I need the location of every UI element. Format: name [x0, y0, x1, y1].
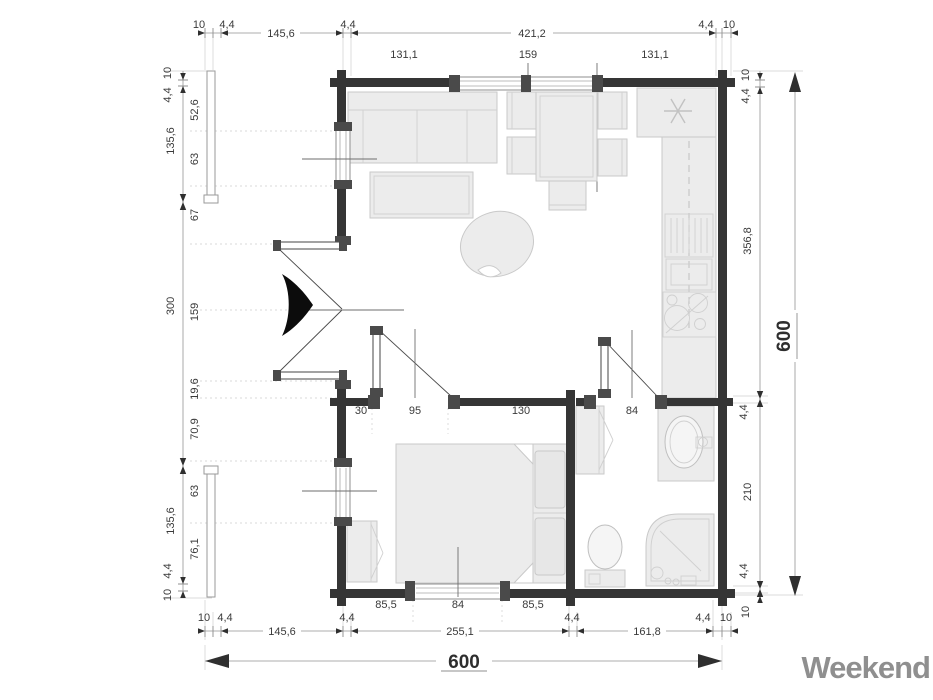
cabinet-body: [576, 406, 604, 474]
dining-chair: [507, 92, 536, 129]
total-dim-label: 600: [774, 320, 795, 352]
door-leaf-cap: [370, 388, 383, 397]
floorplan-page: 10 4,4 145,6 4,4 421,2 4,4 10 131,1 159 …: [0, 0, 933, 700]
door-leaf: [277, 242, 344, 249]
dimensions-right: 10 4,4 356,8 4,4 210 4,4 10 600: [733, 69, 803, 618]
window-cap: [334, 180, 352, 189]
brand-logo: Weekend: [801, 650, 930, 685]
exterior-wall-bottom: [330, 589, 735, 598]
door-leaf-cap: [370, 326, 383, 335]
door-leaf: [373, 329, 380, 395]
porch: [204, 71, 218, 597]
toilet-bowl: [588, 525, 622, 569]
dim-label: 4,4: [698, 19, 713, 31]
dim-label: 130: [512, 405, 530, 417]
window-frame: [336, 461, 350, 524]
dimensions-bottom: 85,5 84 85,5 10 4,4 145,6 4,4 255,1 4,4 …: [198, 599, 738, 673]
door-post: [368, 395, 380, 409]
dim-label: 210: [742, 483, 754, 501]
dim-label: 131,1: [641, 49, 669, 61]
window-cap: [449, 75, 460, 92]
dim-label: 30: [355, 405, 367, 417]
porch-rail-bottom: [207, 466, 215, 597]
dim-label: 4,4: [339, 612, 354, 624]
dining-chair: [507, 137, 536, 174]
dim-label: 76,1: [189, 538, 201, 559]
pillow: [535, 451, 565, 508]
coffee-table-top: [370, 172, 473, 218]
dim-label: 84: [626, 405, 638, 417]
dim-label: 4,4: [738, 404, 750, 419]
total-dim-label: 600: [448, 652, 480, 673]
door-swing-line: [380, 331, 452, 397]
dim-label: 85,5: [375, 599, 396, 611]
porch-rail-top-foot: [204, 195, 218, 203]
door-post: [584, 395, 596, 409]
dining-area: [507, 92, 627, 210]
dim-label: 52,6: [189, 99, 201, 120]
dim-label: 161,8: [633, 626, 661, 638]
door-leaf-cap: [273, 240, 281, 251]
dim-label: 4,4: [217, 612, 232, 624]
door-post: [335, 380, 351, 389]
bathroom-cabinet: [576, 406, 613, 474]
bed: [396, 444, 567, 583]
bedroom-door: [368, 326, 460, 409]
door-leaf-cap: [598, 389, 611, 398]
dining-table: [536, 92, 597, 181]
door-post: [655, 395, 667, 409]
dim-label: 4,4: [740, 88, 752, 103]
dim-label: 10: [198, 612, 210, 624]
window-cap: [521, 75, 531, 92]
interior-wall-divider: [566, 390, 575, 606]
dim-label: 300: [165, 297, 177, 315]
dim-label: 145,6: [268, 626, 296, 638]
dim-label: 95: [409, 405, 421, 417]
dim-label: 4,4: [564, 612, 579, 624]
dim-label: 421,2: [518, 28, 546, 40]
floorplan-drawing: 10 4,4 145,6 4,4 421,2 4,4 10 131,1 159 …: [0, 0, 933, 700]
dim-label: 19,6: [189, 378, 201, 399]
washbasin: [665, 416, 703, 468]
entrance-arrow: [282, 274, 313, 336]
door-post: [448, 395, 460, 409]
kitchen: [637, 88, 716, 398]
dim-label: 356,8: [742, 227, 754, 255]
dim-label: 10: [162, 67, 174, 79]
dim-label: 4,4: [738, 563, 750, 578]
door-leaf-cap: [273, 370, 281, 381]
dim-label: 63: [189, 153, 201, 165]
interior-wall-mid-b: [452, 398, 567, 406]
window-top: [449, 75, 603, 92]
exterior-wall-right: [718, 70, 727, 606]
dim-label: 10: [740, 606, 752, 618]
dim-label: 10: [740, 69, 752, 81]
window-cap: [405, 581, 415, 601]
interior-wall-mid-d: [659, 398, 733, 406]
dim-label: 84: [452, 599, 464, 611]
bathroom-door: [584, 330, 667, 409]
wardrobe: [347, 521, 383, 582]
interior-wall-mid-a: [330, 398, 372, 406]
dim-label: 10: [720, 612, 732, 624]
coffee-table: [370, 172, 473, 218]
door-leaf-cap: [598, 337, 611, 346]
window-frame: [409, 584, 506, 599]
dim-label: 4,4: [219, 19, 234, 31]
window-cap: [334, 517, 352, 526]
dimensions-middle: 30 95 130 15,2 84 62,6: [355, 405, 703, 417]
dining-chair: [598, 92, 627, 129]
door-leaf-cap: [339, 370, 347, 381]
bedroom: [347, 444, 567, 583]
dim-label: 255,1: [446, 626, 474, 638]
sofa-body: [348, 92, 497, 163]
dim-label: 4,4: [162, 87, 174, 102]
sofa: [348, 92, 497, 163]
door-leaf-cap: [339, 240, 347, 251]
window-cap: [334, 122, 352, 131]
door-leaf: [277, 372, 344, 379]
dim-label: 85,5: [522, 599, 543, 611]
bathroom: [576, 406, 714, 587]
porch-rail-bottom-cap: [204, 466, 218, 474]
dining-chair: [598, 139, 627, 176]
pillow: [535, 518, 565, 575]
dim-label: 135,6: [165, 127, 177, 155]
door-leaf: [601, 340, 608, 396]
dim-label: 10: [193, 19, 205, 31]
porch-rail-top: [207, 71, 215, 203]
dim-label: 4,4: [695, 612, 710, 624]
window-cap: [500, 581, 510, 601]
wardrobe-body: [347, 521, 377, 582]
dim-label: 63: [189, 485, 201, 497]
window-cap: [334, 458, 352, 467]
dim-label: 70,9: [189, 418, 201, 439]
dim-label: 159: [189, 303, 201, 321]
dim-label: 4,4: [340, 19, 355, 31]
toilet-tank: [585, 570, 625, 587]
bathroom-vanity: [658, 406, 714, 481]
shower: [646, 514, 714, 586]
dim-label: 145,6: [267, 28, 295, 40]
dining-chair-bottom: [549, 181, 586, 210]
dim-label: 131,1: [390, 49, 418, 61]
window-frame: [336, 124, 350, 187]
entrance-door: [273, 236, 404, 389]
dim-label: 10: [723, 19, 735, 31]
dim-label: 10: [162, 589, 174, 601]
dim-label: 67: [189, 209, 201, 221]
window-left-bedroom: [302, 458, 377, 526]
toilet: [585, 525, 625, 587]
dim-label: 4,4: [162, 563, 174, 578]
dim-label: 159: [519, 49, 537, 61]
door-swing-line: [604, 340, 657, 396]
dimensions-left: 10 4,4 135,6 300 135,6 4,4 10 52,6 63 67…: [162, 67, 212, 601]
dim-label: 135,6: [165, 507, 177, 535]
window-cap: [592, 75, 603, 92]
